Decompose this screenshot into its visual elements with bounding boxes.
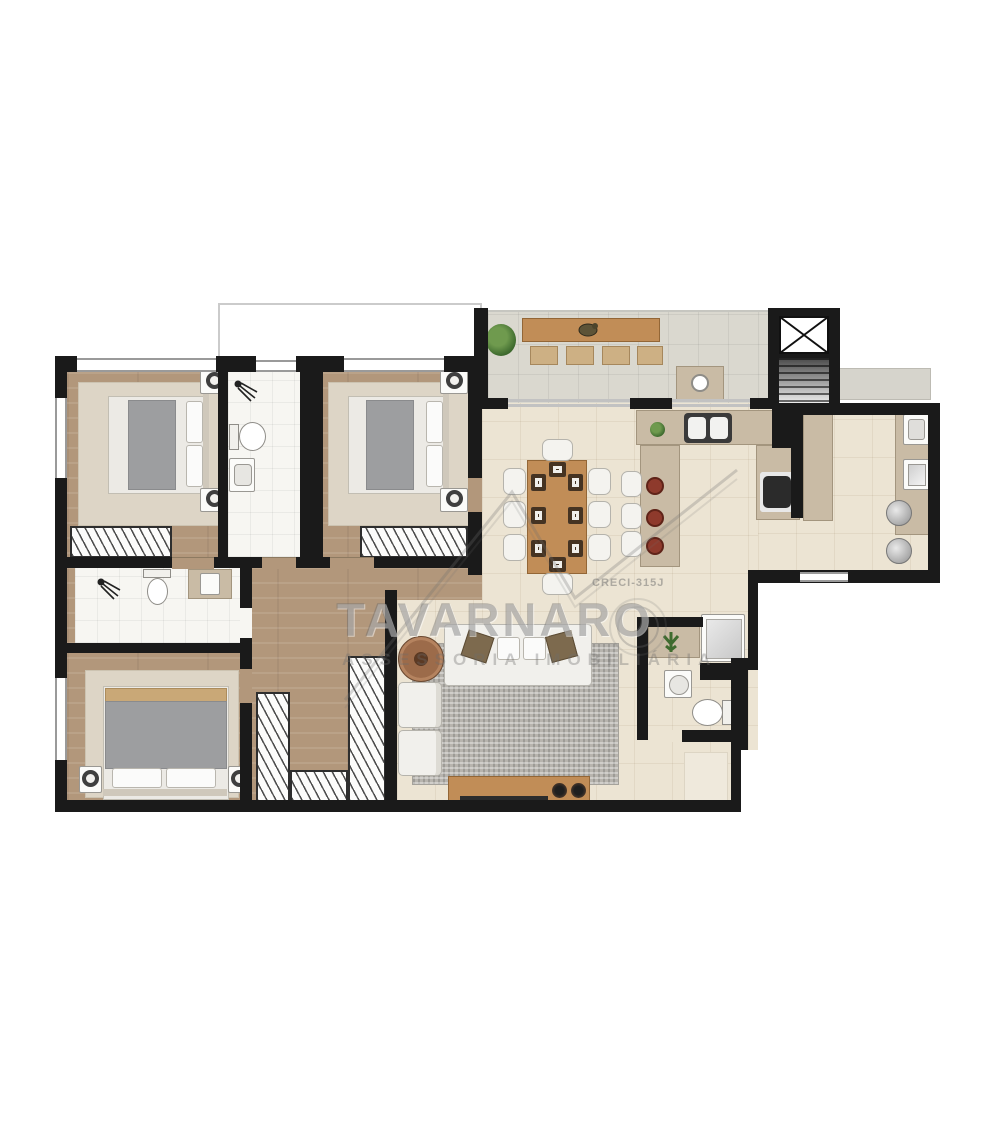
wall — [300, 366, 323, 562]
wall — [240, 568, 252, 608]
wall — [928, 403, 940, 584]
wall — [468, 398, 508, 409]
bedroom2-pillow — [426, 401, 443, 443]
bedroom3-headboard — [103, 789, 227, 796]
door-opening — [468, 478, 482, 512]
wall — [55, 800, 741, 812]
open-air-slab — [218, 303, 482, 362]
place-setting — [531, 507, 546, 524]
wall — [385, 682, 397, 812]
terrace-stool — [530, 346, 558, 365]
kitchen-sink-basin — [688, 417, 706, 439]
terrace-stool — [602, 346, 630, 365]
place-setting — [568, 474, 583, 491]
bedroom1-pillow — [186, 401, 203, 443]
grill-sink — [691, 374, 709, 392]
bedroom2-window — [344, 358, 444, 372]
wall — [240, 703, 252, 802]
exterior — [758, 583, 943, 823]
place-setting — [549, 557, 566, 572]
bathroom1-sink — [234, 464, 252, 486]
bedroom3-pillow — [166, 768, 216, 788]
speaker-icon — [552, 783, 567, 798]
door-opening — [330, 557, 374, 569]
bedroom1-side-window — [55, 398, 67, 478]
bedroom3-pillow — [112, 768, 162, 788]
stairs — [779, 358, 829, 403]
place-setting — [531, 540, 546, 557]
terrace-plant-icon — [486, 324, 516, 356]
bedroom2-headboard — [443, 394, 449, 494]
armchair — [398, 730, 442, 776]
wall — [682, 730, 748, 742]
kitchen-stool — [621, 503, 642, 529]
closet-shelving — [290, 770, 348, 802]
lavabo-toilet — [692, 699, 723, 726]
watermark-title: TAVARNARO — [336, 592, 653, 647]
terrace-stool — [637, 346, 663, 365]
kitchen-plant-icon — [650, 422, 665, 437]
kitchen-stool — [621, 471, 642, 497]
bedroom1-bed-blanket — [128, 400, 176, 490]
bedroom3-side-window — [55, 678, 67, 760]
bedroom2-lamp-icon — [446, 490, 463, 507]
door-opening — [172, 557, 214, 569]
watermark-tagline: ASSESSORIA IMOBILIÁRIA — [342, 650, 717, 670]
floor-plan-page: CRECI-315J TAVARNARO ASSESSORIA IMOBILIÁ… — [0, 0, 1000, 1126]
sliding-door-track — [508, 404, 630, 407]
laundry-sink-basin — [908, 419, 925, 440]
dining-chair — [503, 468, 526, 495]
sliding-door-track — [672, 399, 750, 402]
wall — [791, 415, 803, 518]
bedroom2-lamp-icon — [446, 372, 463, 389]
dining-chair — [588, 501, 611, 528]
service-window — [800, 572, 848, 582]
elevator — [779, 316, 829, 354]
dining-chair — [542, 439, 573, 461]
place-setting — [531, 474, 546, 491]
sliding-door-track — [672, 404, 750, 407]
stove — [760, 472, 794, 512]
place-setting — [549, 462, 566, 477]
dining-chair — [503, 501, 526, 528]
bedroom2-bed-blanket — [366, 400, 414, 490]
bathroom1-toilet-tank — [229, 424, 239, 450]
closet-shelving — [348, 656, 386, 804]
lavabo-mat — [684, 752, 728, 802]
roof-slab — [835, 368, 931, 400]
sliding-door-track — [508, 399, 630, 402]
exterior — [741, 750, 758, 814]
decor-bird-icon — [576, 320, 600, 338]
social-sink — [200, 573, 220, 595]
wall — [67, 643, 252, 653]
bedroom1-window — [77, 358, 216, 372]
dining-chair — [588, 534, 611, 561]
lavabo-sink-basin — [669, 675, 689, 695]
bedroom1-wardrobe — [70, 526, 172, 558]
shower-icon — [95, 575, 123, 603]
kitchen-stool-red — [646, 537, 664, 555]
wall — [468, 512, 482, 575]
dining-chair — [588, 468, 611, 495]
shower-icon — [233, 378, 261, 404]
kitchen-stool-red — [646, 477, 664, 495]
terrace-stool — [566, 346, 594, 365]
speaker-icon — [571, 783, 586, 798]
kitchen-sink-basin — [710, 417, 728, 439]
wall — [218, 366, 228, 562]
armchair — [398, 682, 442, 728]
door-opening — [240, 669, 252, 703]
wall — [731, 742, 741, 812]
laundry-tub — [886, 538, 912, 564]
door-opening — [262, 557, 296, 569]
door-opening — [240, 608, 252, 638]
social-toilet-tank — [143, 569, 171, 578]
bathroom1-toilet — [239, 422, 266, 451]
place-setting — [568, 540, 583, 557]
bedroom3-lamp-icon — [82, 770, 99, 787]
watermark-license: CRECI-315J — [592, 577, 664, 589]
bedroom2-wardrobe — [360, 526, 468, 558]
kitchen-stool — [621, 531, 642, 557]
bedroom2-pillow — [426, 445, 443, 487]
social-toilet — [147, 578, 168, 605]
closet-shelving — [256, 692, 290, 804]
wall — [748, 583, 758, 670]
place-setting — [568, 507, 583, 524]
bedroom1-pillow — [186, 445, 203, 487]
bedroom3-bed-blanket — [105, 701, 227, 769]
laundry-tub — [886, 500, 912, 526]
dining-chair — [503, 534, 526, 561]
washing-machine-door — [908, 464, 926, 486]
door-opening — [648, 730, 682, 742]
bathroom1-window — [256, 360, 296, 372]
wall — [474, 308, 488, 408]
kitchen-stool-red — [646, 509, 664, 527]
service-counter-left — [803, 413, 833, 521]
wall — [240, 653, 252, 669]
wall — [630, 398, 672, 409]
bedroom1-headboard — [203, 394, 209, 494]
